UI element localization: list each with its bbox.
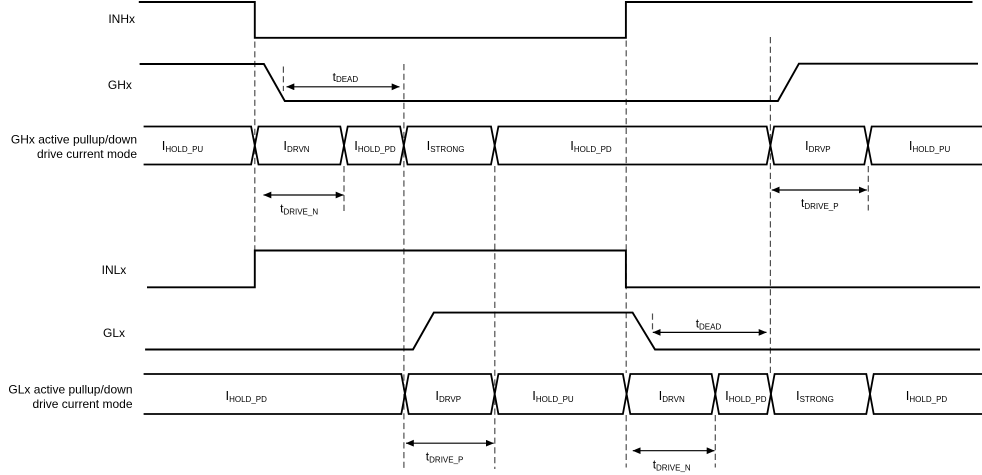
svg-text:drive current mode: drive current mode [32,397,132,411]
svg-text:INLx: INLx [102,263,127,277]
svg-text:GHx active pullup/down: GHx active pullup/down [11,133,137,147]
svg-text:GLx: GLx [103,326,125,340]
svg-text:drive current mode: drive current mode [37,147,137,161]
svg-text:GLx active pullup/down: GLx active pullup/down [8,383,132,397]
svg-text:INHx: INHx [108,12,135,26]
svg-text:GHx: GHx [108,78,132,92]
